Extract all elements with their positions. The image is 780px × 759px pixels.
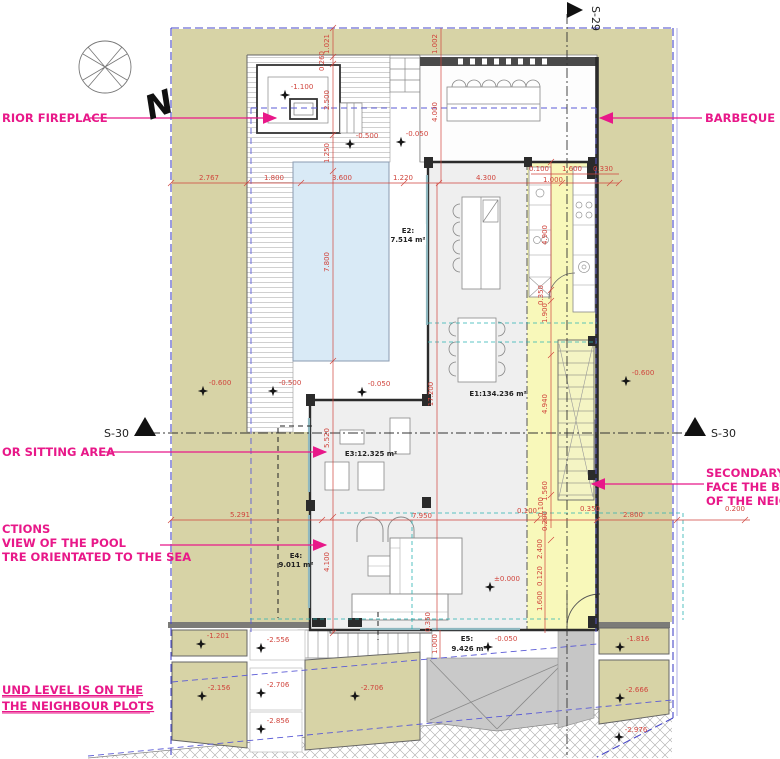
fireplace-steps (340, 103, 362, 133)
e3-stool-2 (358, 462, 384, 490)
floor-plan-canvas: 2.767 1.800 3.600 1.220 4.300 0.100 1.60… (0, 0, 780, 759)
level-label: -0.600 (632, 369, 655, 377)
level-label: -2.156 (208, 684, 231, 692)
swimming-pool (293, 162, 389, 361)
e3-chaise (390, 418, 410, 454)
dim-label: 0.350 (580, 505, 600, 513)
e3-stool-1 (325, 462, 349, 490)
retaining-wall-left (168, 622, 310, 628)
counter-right (573, 167, 595, 312)
room-label-e5: E5: (461, 635, 474, 643)
dim-label: 0.330 (593, 165, 613, 173)
dim-label: 1.000 (543, 176, 563, 184)
dim-label: 3.600 (332, 174, 352, 182)
terrace-box-2556 (250, 630, 305, 660)
terrace-box-2706k (305, 652, 420, 750)
section-label-s30-left: S-30 (104, 427, 129, 440)
dim-label: 1.600 (562, 165, 582, 173)
dim-label: 1.250 (323, 143, 331, 163)
level-label: -2.666 (626, 686, 649, 694)
dining-table (458, 318, 496, 382)
callout-secondary-1: SECONDARY F (706, 466, 780, 480)
level-label: -2.976 (625, 726, 648, 734)
section-triangle-s29 (567, 2, 583, 18)
dim-label: 7.800 (323, 252, 331, 272)
level-label: -0.050 (495, 635, 518, 643)
level-label: -0.050 (406, 130, 429, 138)
dim-label: 2.800 (623, 511, 643, 519)
dim-label: 0.100 (517, 507, 537, 515)
section-triangle-s30-left (134, 417, 156, 436)
level-label: -0.500 (279, 379, 302, 387)
dim-label: 1.900 (541, 303, 549, 323)
callout-fireplace: RIOR FIREPLACE (2, 111, 108, 125)
dim-label: 7.950 (412, 512, 432, 520)
callout-pool-note-2: VIEW OF THE POOL (2, 536, 127, 550)
dim-label: 2.767 (199, 174, 219, 182)
dim-label: 1.800 (264, 174, 284, 182)
terrace-box-2706w (250, 668, 302, 710)
dim-label: 1.000 (431, 634, 439, 654)
dim-label: 4.000 (431, 102, 439, 122)
level-label: -0.600 (209, 379, 232, 387)
dim-label: 4.100 (323, 552, 331, 572)
room-label-e4-area: 9.011 m² (279, 561, 314, 569)
dim-label: 0.350 (424, 612, 432, 632)
dim-label: 1.220 (393, 174, 413, 182)
callout-sitting-area: OR SITTING AREA (2, 445, 115, 459)
callout-ground-note-1: UND LEVEL IS ON THE (2, 683, 143, 697)
section-label-s29: S-29 (589, 6, 602, 31)
dim-label: 5.291 (230, 511, 250, 519)
dim-label: 1.002 (431, 34, 439, 54)
callout-pool-note-1: CTIONS (2, 522, 50, 536)
section-triangle-s30-right (684, 417, 706, 436)
compass-spokes (83, 47, 127, 87)
side-ramp (558, 628, 594, 728)
dim-label: 2.400 (536, 539, 544, 559)
room-label-e1: E1:134.236 m² (469, 390, 526, 398)
level-label: -0.500 (356, 132, 379, 140)
callout-barbeque: BARBEQUE (705, 111, 775, 125)
callout-secondary-3: OF THE NEIGH (706, 494, 780, 508)
retaining-wall-right (597, 622, 670, 628)
room-label-e2-area: 7.514 m² (391, 236, 426, 244)
level-label: -1.816 (627, 635, 650, 643)
dim-label: 4.300 (476, 174, 496, 182)
room-label-e4: E4: (290, 552, 303, 560)
section-label-s30-right: S-30 (711, 427, 736, 440)
site-plan-drawing: 2.767 1.800 3.600 1.220 4.300 0.100 1.60… (0, 0, 780, 759)
level-label: -1.100 (291, 83, 314, 91)
dim-label: 0.120 (536, 566, 544, 586)
dim-label: 2.500 (323, 90, 331, 110)
dim-label: 17.200 (427, 382, 435, 407)
level-label: -0.050 (368, 380, 391, 388)
dim-label: 0.200 (541, 511, 549, 531)
sofa (352, 594, 448, 620)
level-label: ±0.000 (494, 575, 520, 583)
dim-label: 4.900 (541, 225, 549, 245)
level-label: -2.556 (267, 636, 290, 644)
dim-label: 1.600 (536, 591, 544, 611)
dim-label: 5.520 (323, 428, 331, 448)
level-label: -2.706 (361, 684, 384, 692)
callout-ground-note-2: THE NEIGHBOUR PLOTS (2, 699, 154, 713)
level-label: -2.706 (267, 681, 290, 689)
dim-label: 0.260 (318, 51, 326, 71)
room-label-e2: E2: (402, 227, 415, 235)
callout-pool-note-3: TRE ORIENTATED TO THE SEA (2, 550, 191, 564)
e3-table (340, 430, 364, 444)
level-label: -2.856 (267, 717, 290, 725)
dim-label: 0.350 (537, 285, 545, 305)
sectional-sofa (390, 538, 462, 594)
level-label: -1.201 (207, 632, 230, 640)
room-label-e3: E3:12.325 m² (345, 450, 397, 458)
dim-label: 0.100 (529, 165, 549, 173)
callout-secondary-2: FACE THE BLI (706, 480, 780, 494)
terrace-box-2156 (172, 662, 247, 748)
room-label-e5-area: 9.426 m² (452, 645, 487, 653)
dim-label: 4.940 (541, 394, 549, 414)
